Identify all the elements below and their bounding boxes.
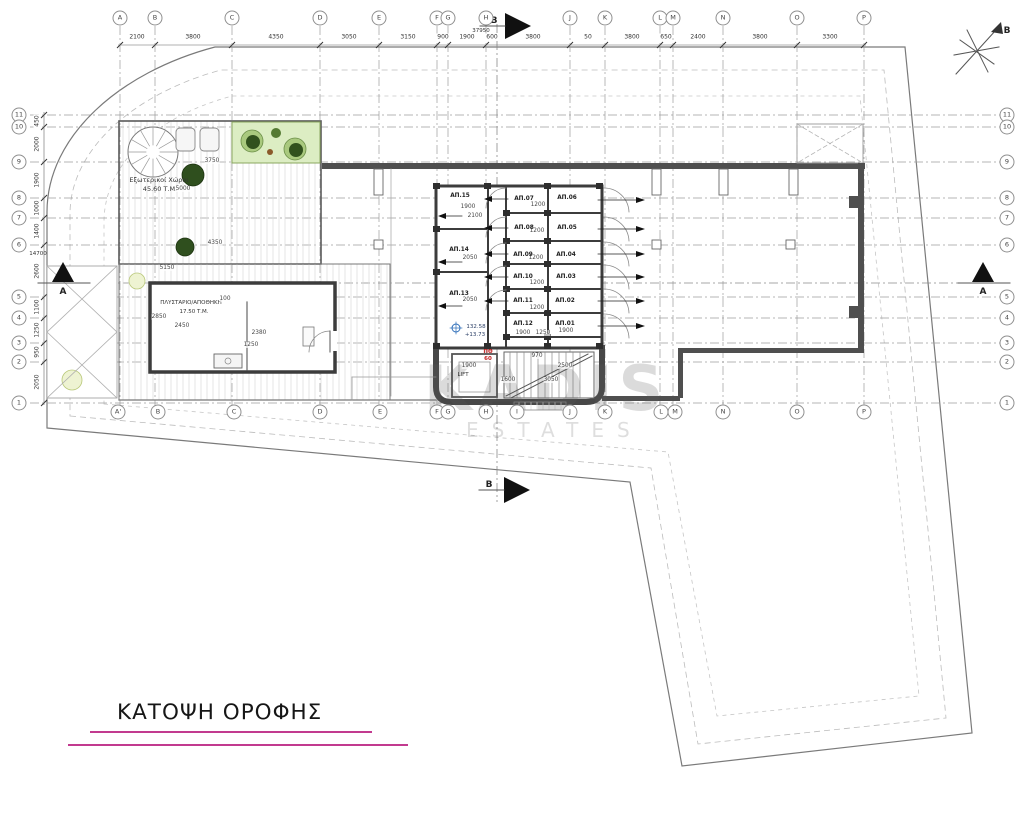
dim-label: 50: [583, 34, 593, 41]
room-label-lift: LIFT: [457, 372, 468, 378]
grid-bubble-right-7: 7: [1000, 211, 1015, 226]
unit-label-ΑΠ.05: ΑΠ.05: [557, 225, 577, 231]
dim-label: 2050: [463, 297, 478, 303]
grid-bubble-left-3: 3: [12, 336, 27, 351]
grid-bubble-bottom-N: N: [716, 405, 731, 420]
grid-bubble-top-K: K: [598, 11, 613, 26]
dim-label: 1200: [531, 202, 546, 208]
grid-bubble-bottom-C: C: [227, 405, 242, 420]
grid-bubble-top-G: G: [441, 11, 456, 26]
grid-bubble-left-10: 10: [12, 120, 27, 135]
unit-label-ΑΠ.11: ΑΠ.11: [513, 298, 533, 304]
unit-label-ΑΠ.15: ΑΠ.15: [450, 193, 470, 199]
grid-bubble-bottom-O: O: [790, 405, 805, 420]
floor-plan-sheet: KADIS ESTATES Εξωτερικοί Χώροι 45.60 Τ.Μ…: [0, 0, 1024, 815]
grid-bubble-top-A: A: [113, 11, 128, 26]
grid-bubble-bottom-K: K: [598, 405, 613, 420]
dim-label: 2050: [34, 373, 41, 390]
grid-bubble-right-5: 5: [1000, 290, 1015, 305]
dim-label: 2500: [558, 363, 573, 369]
grid-bubble-top-J: J: [563, 11, 578, 26]
room-area-exterior: 45.60 Τ.Μ.: [143, 185, 177, 193]
unit-label-ΑΠ.14: ΑΠ.14: [449, 247, 469, 253]
dim-label: 3300: [821, 34, 838, 41]
dim-label: 3800: [184, 34, 201, 41]
dim-label: 1900: [559, 328, 574, 334]
fire-rating-value: 60: [484, 356, 492, 362]
title-underline-2: [68, 744, 408, 746]
unit-label-ΑΠ.09: ΑΠ.09: [513, 252, 533, 258]
section-a-label-left: A: [60, 287, 67, 297]
unit-label-ΑΠ.12: ΑΠ.12: [513, 321, 533, 327]
grid-bubble-left-8: 8: [12, 191, 27, 206]
unit-label-ΑΠ.04: ΑΠ.04: [556, 252, 576, 258]
dim-label: 1100: [34, 298, 41, 315]
dim-label: 2450: [175, 323, 190, 329]
unit-label-ΑΠ.08: ΑΠ.08: [514, 225, 534, 231]
unit-label-ΑΠ.06: ΑΠ.06: [557, 195, 577, 201]
unit-label-ΑΠ.03: ΑΠ.03: [556, 274, 576, 280]
annotation-layer: Εξωτερικοί Χώροι 45.60 Τ.Μ. ΠΛΥΣΤΑΡΙΟ/ΑΠ…: [0, 0, 1024, 815]
section-a-label-right: A: [980, 287, 987, 297]
north-label: B: [1004, 26, 1011, 36]
dim-label: 4350: [267, 34, 284, 41]
grid-bubble-top-O: O: [790, 11, 805, 26]
dim-label: 600: [485, 34, 498, 41]
grid-bubble-top-B: B: [148, 11, 163, 26]
dim-label: 100: [219, 296, 230, 302]
dim-label: 3750: [205, 158, 220, 164]
dim-label: 950: [34, 345, 41, 358]
dim-label: 3050: [340, 34, 357, 41]
grid-bubble-top-C: C: [225, 11, 240, 26]
grid-bubble-left-2: 2: [12, 355, 27, 370]
grid-bubble-right-6: 6: [1000, 238, 1015, 253]
grid-bubble-bottom-A': A': [111, 405, 126, 420]
grid-bubble-right-1: 1: [1000, 396, 1015, 411]
dim-label: 2400: [689, 34, 706, 41]
grid-bubble-left-4: 4: [12, 311, 27, 326]
grid-bubble-right-9: 9: [1000, 155, 1015, 170]
room-area-laundry: 17.50 Τ.Μ.: [179, 309, 208, 315]
grid-bubble-left-1: 1: [12, 396, 27, 411]
unit-label-ΑΠ.07: ΑΠ.07: [514, 196, 534, 202]
room-label-laundry: ΠΛΥΣΤΑΡΙΟ/ΑΠΟΘΗΚΗ: [160, 300, 221, 306]
unit-label-ΑΠ.01: ΑΠ.01: [555, 321, 575, 327]
grid-bubble-bottom-D: D: [313, 405, 328, 420]
dim-label: 970: [531, 353, 542, 359]
dim-label: 3800: [623, 34, 640, 41]
dim-label: 3800: [524, 34, 541, 41]
dim-label: 1250: [536, 330, 551, 336]
grid-bubble-top-P: P: [857, 11, 872, 26]
dim-label: 1000: [34, 199, 41, 216]
dim-label: 650: [659, 34, 672, 41]
grid-bubble-bottom-P: P: [857, 405, 872, 420]
dim-label: 1400: [34, 222, 41, 239]
dim-label: 1600: [501, 377, 516, 383]
grid-bubble-right-3: 3: [1000, 336, 1015, 351]
dim-label: 2000: [34, 135, 41, 152]
grid-bubble-bottom-B: B: [151, 405, 166, 420]
dim-label: 450: [34, 114, 41, 127]
grid-bubble-left-6: 6: [12, 238, 27, 253]
drawing-title: ΚΑΤΟΨΗ ΟΡΟΦΗΣ: [117, 700, 322, 725]
grid-bubble-top-M: M: [666, 11, 681, 26]
grid-bubble-top-E: E: [372, 11, 387, 26]
dim-label: 3800: [751, 34, 768, 41]
dim-label: 2100: [128, 34, 145, 41]
level-marker-relative: +13.73: [465, 332, 485, 338]
dim-label: 1200: [530, 305, 545, 311]
dim-label: 1250: [244, 342, 259, 348]
dim-label: 1900: [461, 204, 476, 210]
grid-bubble-left-7: 7: [12, 211, 27, 226]
grid-bubble-bottom-G: G: [441, 405, 456, 420]
dim-label: 2600: [34, 262, 41, 279]
grid-bubble-bottom-H: H: [479, 405, 494, 420]
grid-bubble-bottom-M: M: [668, 405, 683, 420]
dim-label: 1250: [34, 321, 41, 338]
dim-label: 1900: [516, 330, 531, 336]
grid-bubble-top-D: D: [313, 11, 328, 26]
grid-bubble-left-9: 9: [12, 155, 27, 170]
dim-label: 1200: [530, 280, 545, 286]
grid-bubble-left-5: 5: [12, 290, 27, 305]
room-label-exterior: Εξωτερικοί Χώροι: [129, 176, 188, 184]
dim-label: 2100: [468, 213, 483, 219]
grid-bubble-bottom-J: J: [563, 405, 578, 420]
dim-label: 4350: [208, 240, 223, 246]
dim-label: 2050: [463, 255, 478, 261]
grid-bubble-right-10: 10: [1000, 120, 1015, 135]
dim-label: 3050: [544, 377, 559, 383]
dim-label: 2380: [252, 330, 267, 336]
total-dim-vertical: 14700: [29, 251, 47, 257]
grid-bubble-right-8: 8: [1000, 191, 1015, 206]
dim-label: 1900: [458, 34, 475, 41]
dim-label: 2850: [152, 314, 167, 320]
level-marker-elevation: 132.58: [466, 324, 485, 330]
dim-label: 900: [436, 34, 449, 41]
dim-label: 5150: [160, 265, 175, 271]
unit-label-ΑΠ.02: ΑΠ.02: [555, 298, 575, 304]
unit-label-ΑΠ.10: ΑΠ.10: [513, 274, 533, 280]
fire-rating-label: ΠΘ: [483, 349, 492, 355]
dim-label: 3150: [399, 34, 416, 41]
section-b-label-bottom: B: [486, 480, 493, 490]
grid-bubble-right-2: 2: [1000, 355, 1015, 370]
dim-label: 1900: [462, 363, 477, 369]
grid-bubble-top-H: H: [479, 11, 494, 26]
grid-bubble-bottom-E: E: [373, 405, 388, 420]
unit-label-ΑΠ.13: ΑΠ.13: [449, 291, 469, 297]
grid-bubble-top-N: N: [716, 11, 731, 26]
dim-label: 1900: [34, 171, 41, 188]
grid-bubble-right-4: 4: [1000, 311, 1015, 326]
title-underline-1: [90, 731, 372, 733]
grid-bubble-bottom-L: L: [654, 405, 669, 420]
grid-bubble-bottom-I: I: [510, 405, 525, 420]
dim-label: 5000: [176, 186, 191, 192]
